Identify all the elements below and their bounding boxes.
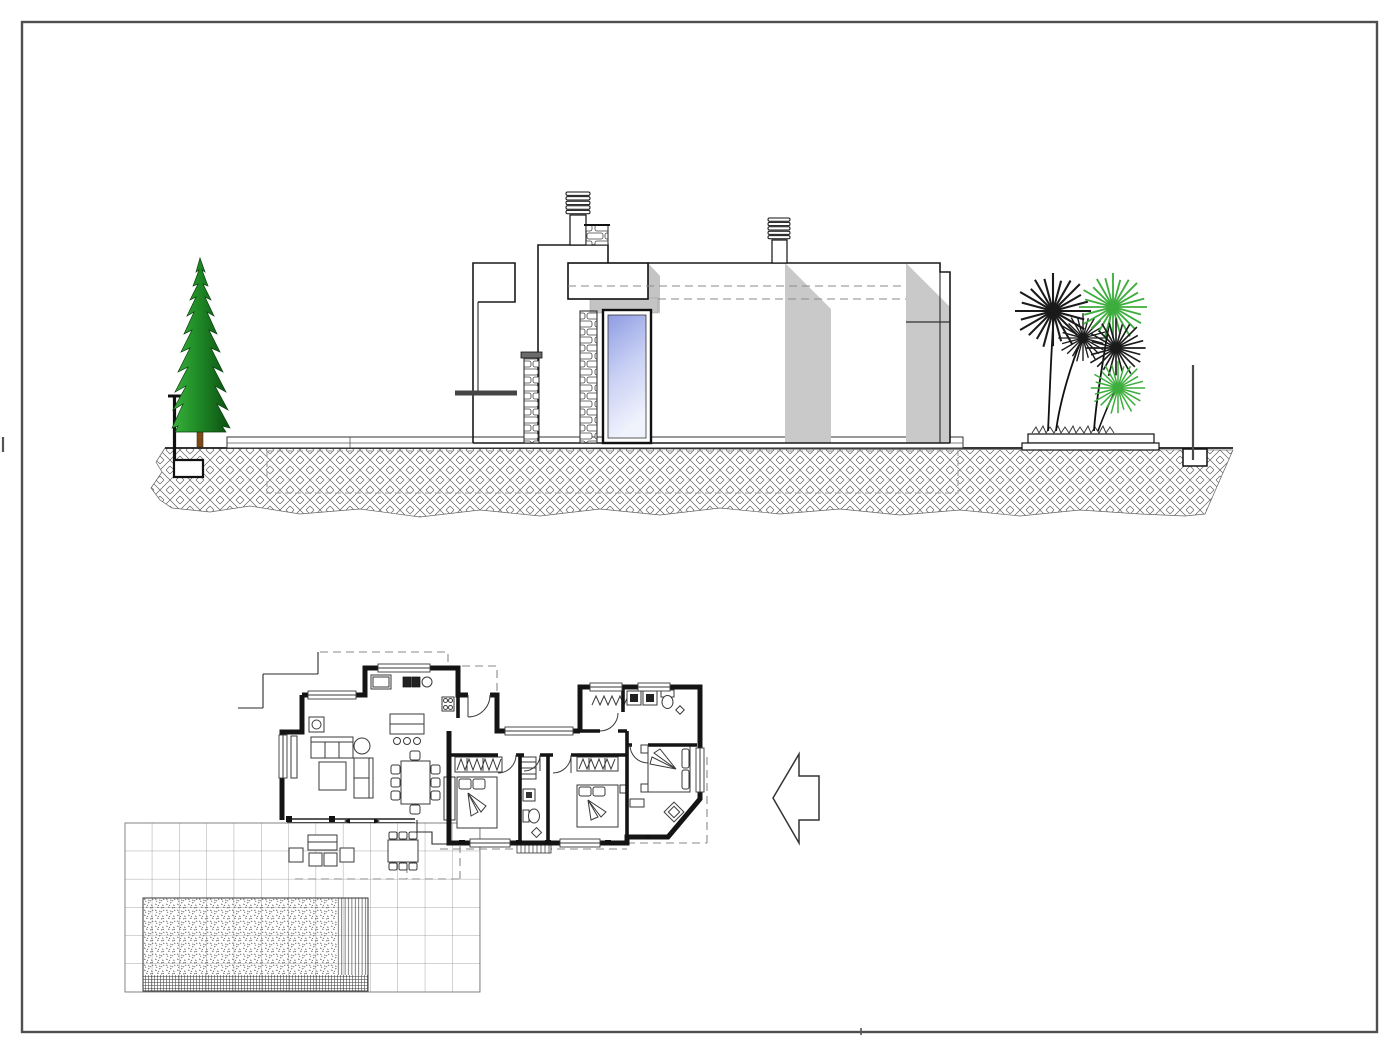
roof-slab-left [568,263,648,299]
pillow [459,779,471,789]
planter-cap [521,352,542,358]
window [696,748,704,792]
pool-steps-lines [337,898,368,975]
round-side-table [354,738,370,754]
cook-pot [422,677,432,687]
coffee-table [319,762,346,790]
drawing-sheet [0,0,1400,1056]
ground-hatched-section [151,448,1233,517]
lounge-chair [340,848,354,862]
kitchen-island [390,714,424,745]
drawing-canvas [0,0,1400,1056]
lounge-chair [324,853,337,866]
lounge-chair [309,853,322,866]
tv-sideboard [291,736,297,778]
window [560,839,600,847]
stone-pillar [580,311,597,443]
window [308,691,356,699]
swimming-pool [143,898,368,991]
window [505,727,573,735]
bar-stool [404,738,411,745]
bar-stool [394,738,401,745]
pool-edge-crosshatch [143,975,368,991]
bar-stool [414,738,421,745]
sofa-three-seat [311,737,353,758]
toilet [661,690,674,709]
pillow [682,770,689,789]
window [590,683,622,691]
terrace-dining-set [388,832,418,870]
sink-bowl [412,677,420,687]
sink-bowl [403,677,411,687]
pillow [579,787,591,796]
bed-2 [577,785,618,827]
entry-steps-comb [517,845,551,853]
sofa-two-seat [354,758,373,798]
desk [630,799,644,807]
vent-stone-base [584,225,610,245]
pillow [473,779,485,789]
wood-stove [309,717,324,732]
stone-planter [524,358,539,443]
window [279,735,287,778]
toilet [523,809,540,823]
outdoor-table [388,840,418,862]
slot-window [603,310,651,443]
lounge-chair [289,848,303,862]
bedroom-1-furniture [444,777,497,828]
washer-door [526,792,532,798]
window [378,664,430,672]
stove-hob [442,697,454,711]
pillow [682,749,689,768]
bed-1 [457,777,497,828]
window [638,683,670,691]
window [470,839,510,847]
pillow [593,787,605,796]
bed-master [648,745,690,792]
nightstand [641,745,648,753]
nightstand [641,784,648,792]
pool-water-stipple [143,898,337,975]
